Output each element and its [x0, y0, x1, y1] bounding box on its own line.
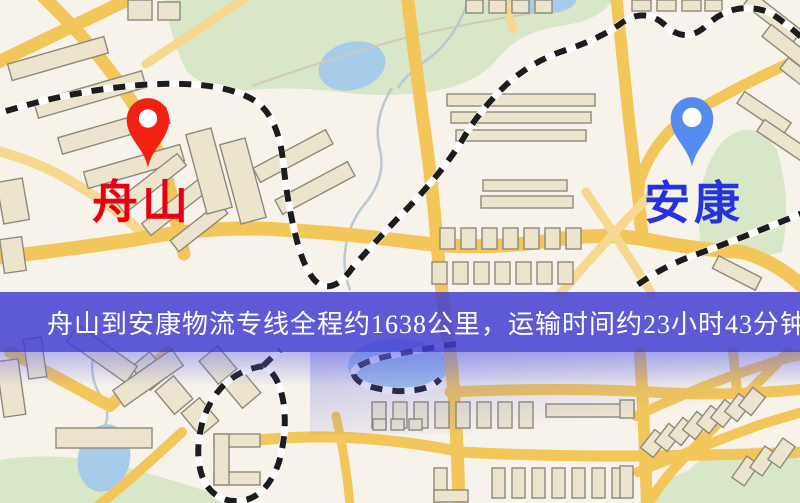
building — [435, 402, 449, 428]
building — [512, 0, 529, 13]
building — [409, 419, 422, 430]
building — [492, 468, 505, 498]
building — [56, 428, 152, 448]
destination-pin-icon[interactable] — [663, 93, 721, 169]
building — [456, 402, 470, 428]
origin-label: 舟山 — [92, 180, 192, 226]
building — [391, 419, 404, 430]
building — [516, 262, 531, 284]
building — [477, 402, 491, 428]
building — [682, 0, 701, 11]
destination-pin-hole — [682, 108, 701, 127]
building — [466, 0, 483, 13]
building — [537, 262, 552, 284]
building — [503, 228, 518, 249]
building — [592, 468, 605, 498]
building — [535, 0, 552, 13]
building — [566, 228, 581, 249]
building — [482, 228, 497, 249]
route-info-text: 舟山到安康物流专线全程约1638公里，运输时间约23小时43分钟. — [0, 304, 800, 341]
building — [481, 196, 573, 208]
building — [519, 402, 533, 428]
building — [524, 228, 539, 249]
building — [461, 228, 476, 249]
origin-pin-icon[interactable] — [119, 94, 177, 170]
building — [432, 262, 447, 284]
building — [489, 0, 506, 13]
building — [558, 262, 573, 284]
map-canvas[interactable]: 舟山到安康物流专线全程约1638公里，运输时间约23小时43分钟. 舟山 安康 — [0, 0, 800, 503]
building — [373, 419, 386, 430]
destination-label: 安康 — [644, 181, 744, 227]
building — [620, 400, 634, 418]
route-info-banner: 舟山到安康物流专线全程约1638公里，运输时间约23小时43分钟. — [0, 292, 800, 352]
building — [214, 434, 229, 485]
origin-pin-shape — [127, 98, 170, 168]
building — [705, 0, 722, 11]
map-artwork — [0, 0, 800, 503]
building — [495, 262, 510, 284]
building — [483, 180, 567, 191]
building — [545, 228, 560, 249]
building — [0, 237, 26, 274]
building — [552, 468, 565, 498]
destination-pin-shape — [671, 97, 714, 167]
road — [640, 352, 647, 503]
building — [532, 468, 545, 498]
building — [572, 468, 585, 498]
building — [453, 262, 468, 284]
building — [128, 0, 152, 20]
building — [512, 468, 525, 498]
building — [632, 0, 651, 11]
building — [620, 466, 633, 498]
building — [158, 2, 180, 20]
building — [498, 402, 512, 428]
building — [447, 94, 595, 106]
building — [434, 490, 468, 502]
building — [474, 262, 489, 284]
building — [440, 228, 455, 249]
origin-pin-hole — [139, 109, 157, 127]
building — [657, 0, 676, 11]
building — [456, 130, 586, 141]
